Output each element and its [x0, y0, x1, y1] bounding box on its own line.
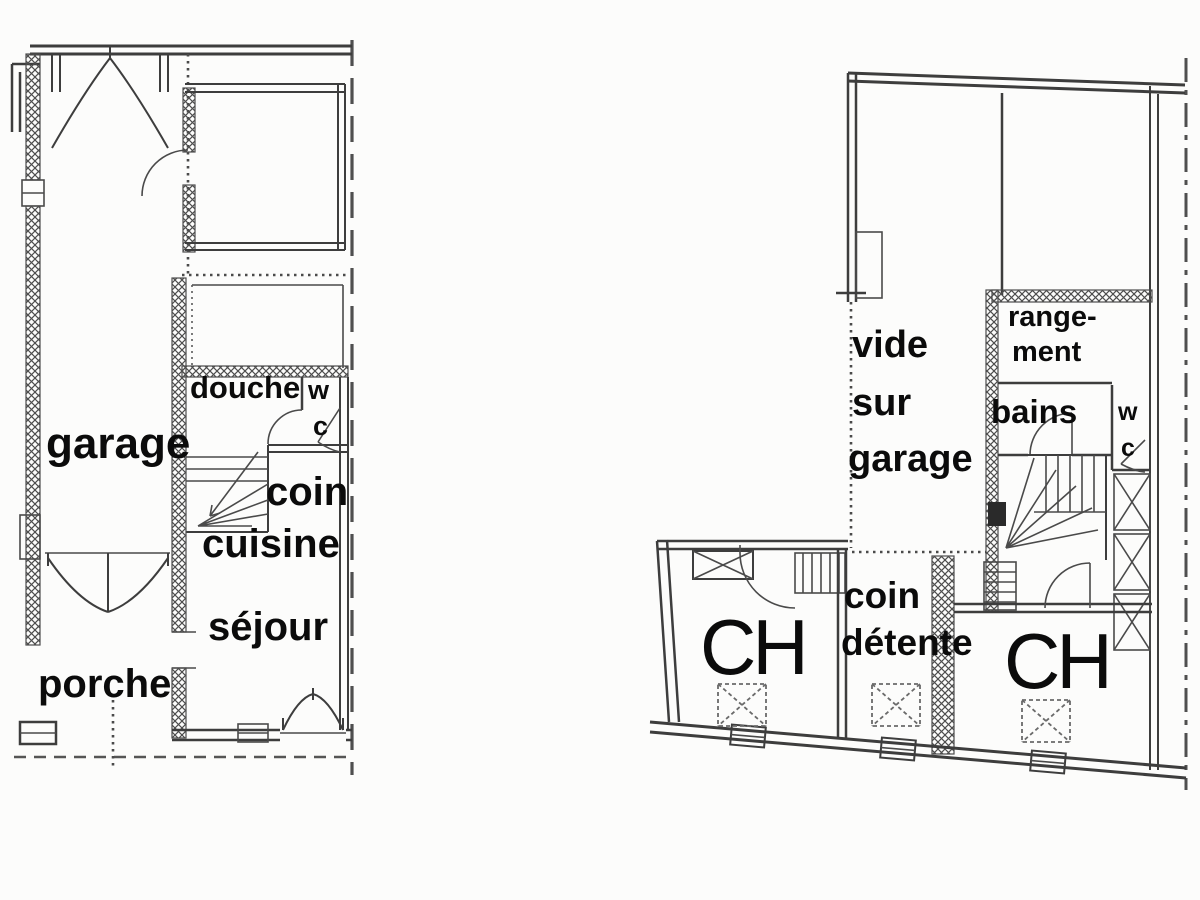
- ch-right-door-arc: [1045, 563, 1090, 608]
- garage-door: [52, 46, 168, 148]
- top-wall: [848, 73, 1185, 93]
- bottom-wall: [172, 688, 352, 742]
- porch-door-jamb: [172, 632, 196, 668]
- room-label-wc-w: w: [1118, 400, 1137, 425]
- room-label-garage: garage: [46, 422, 190, 466]
- room-label-coin-detente-1: coin: [844, 577, 920, 614]
- room-label-coin-detente-2: détente: [841, 624, 973, 661]
- radiator: [1022, 700, 1070, 742]
- room-label-ch-right: CH: [1004, 622, 1109, 700]
- room-label-cuisine: cuisine: [202, 524, 340, 564]
- douche-door-arc: [268, 410, 302, 444]
- room-label-wc-c: c: [1121, 436, 1135, 461]
- room-label-vide: vide: [852, 326, 928, 364]
- room-label-sejour: séjour: [208, 607, 328, 647]
- garage-back-door: [45, 553, 170, 612]
- room-label-sur: sur: [852, 384, 911, 422]
- door-arc: [142, 150, 188, 196]
- stairs: [984, 455, 1106, 610]
- room-label-douche: douche: [190, 372, 300, 403]
- floor-plans-canvas: garage douche w c coin cuisine séjour po…: [0, 0, 1200, 900]
- left-slanted-wall: [657, 540, 679, 722]
- bottom-wall: [650, 722, 1186, 778]
- french-door: [283, 688, 343, 730]
- chimney: [856, 232, 882, 298]
- room-label-ch-left: CH: [700, 608, 805, 686]
- ch-left-top-wall: [657, 541, 848, 549]
- stairs: [186, 445, 268, 532]
- top-right-room: [182, 84, 350, 368]
- room-label-wc-c: c: [313, 413, 328, 440]
- radiator: [872, 684, 920, 726]
- top-wall: [12, 46, 352, 132]
- room-label-rangement-2: ment: [1012, 338, 1081, 367]
- room-label-garage-void: garage: [848, 440, 973, 478]
- room-label-coin: coin: [266, 472, 348, 512]
- room-label-porche: porche: [38, 664, 171, 704]
- room-label-rangement-1: range-: [1008, 303, 1097, 332]
- room-label-bains: bains: [991, 395, 1077, 428]
- room-label-wc-w: w: [308, 377, 329, 404]
- stair-post: [988, 502, 1006, 526]
- right-wall: [1150, 86, 1158, 770]
- closet-column: [1114, 474, 1150, 650]
